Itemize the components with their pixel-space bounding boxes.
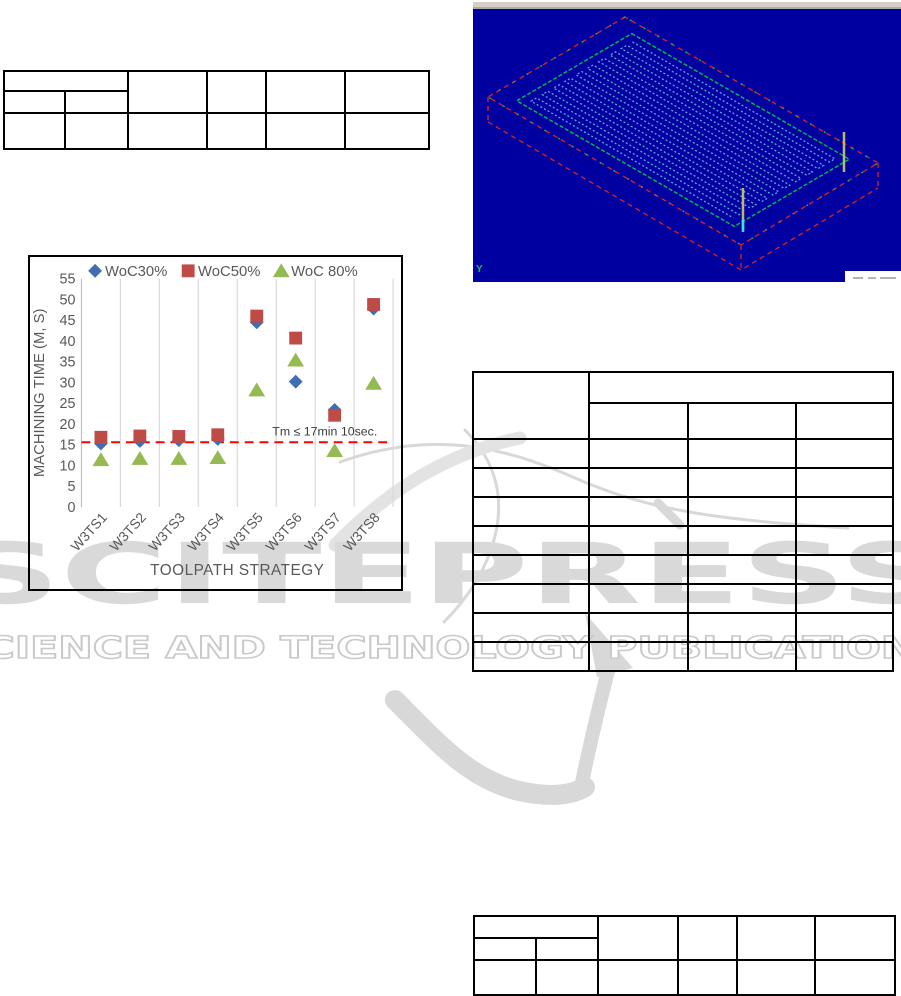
data-table-bottomright: [473, 915, 896, 996]
x-tick-label: W3TS3: [145, 509, 188, 554]
y-axis-title: MACHINING TIME (M, S): [32, 309, 48, 478]
data-table-topleft: [3, 70, 430, 150]
table-cell: [815, 916, 895, 960]
data-point-square: [182, 264, 195, 277]
data-point-triangle: [326, 443, 343, 457]
table-cell: [688, 468, 796, 497]
table-cell: [678, 916, 737, 960]
data-point-square: [289, 332, 302, 345]
table-cell: [473, 526, 589, 555]
table-cell: [688, 584, 796, 613]
table-cell: [796, 497, 893, 526]
table-cell: [598, 916, 678, 960]
table-cell: [688, 642, 796, 671]
table-cell: [796, 584, 893, 613]
data-point-diamond: [289, 375, 303, 389]
table-cell: [688, 526, 796, 555]
paper-page: SCITEPRESS SCIENCE AND TECHNOLOGY PUBLIC…: [0, 0, 901, 996]
data-point-square: [94, 431, 107, 444]
y-tick-label: 45: [60, 313, 76, 329]
table-cell: [207, 71, 266, 113]
y-tick-label: 25: [60, 396, 76, 412]
table-cell: [589, 555, 688, 584]
y-tick-label: 55: [60, 272, 76, 288]
table-cell: [796, 468, 893, 497]
table-cell: [589, 439, 688, 468]
table-cell: [796, 403, 893, 439]
table-cell: [589, 613, 688, 642]
table-cell: [474, 938, 536, 960]
y-tick-label: 20: [60, 417, 76, 433]
table-cell: [474, 960, 536, 995]
machining-time-chart: 0510152025303540455055MACHINING TIME (M,…: [28, 255, 403, 591]
data-point-square: [367, 298, 380, 311]
legend-label: WoC50%: [198, 264, 260, 280]
table-cell: [473, 584, 589, 613]
y-tick-label: 5: [68, 479, 76, 495]
chart-legend: WoC30%WoC50%WoC 80%: [88, 263, 358, 279]
table-cell: [589, 372, 893, 403]
data-point-triangle: [170, 451, 187, 465]
data-point-triangle: [273, 263, 290, 277]
table-cell: [266, 113, 345, 149]
x-tick-group: W3TS4: [184, 509, 227, 554]
y-tick-label: 15: [60, 438, 76, 454]
table-cell: [473, 439, 589, 468]
table-cell: [473, 642, 589, 671]
x-tick-label: W3TS2: [106, 509, 149, 554]
y-tick-label: 0: [68, 500, 76, 516]
table-cell: [589, 468, 688, 497]
table-cell: [589, 584, 688, 613]
y-tick-label: 10: [60, 458, 76, 474]
x-tick-group: W3TS8: [340, 509, 383, 554]
table-cell: [589, 526, 688, 555]
data-point-square: [172, 430, 185, 443]
x-axis-title: TOOLPATH STRATEGY: [150, 562, 324, 579]
y-tick-label: 40: [60, 334, 76, 350]
table-cell: [796, 555, 893, 584]
table-cell: [796, 642, 893, 671]
x-tick-label: W3TS6: [262, 509, 305, 554]
cad-axis-label: Y: [476, 264, 483, 275]
table-cell: [589, 403, 688, 439]
chart-canvas: 0510152025303540455055MACHINING TIME (M,…: [30, 257, 401, 589]
table-cell: [688, 439, 796, 468]
table-cell: [796, 613, 893, 642]
data-point-square: [211, 428, 224, 441]
table-cell: [815, 960, 895, 995]
x-tick-group: W3TS6: [262, 509, 305, 554]
table-cell: [473, 555, 589, 584]
table-cell: [688, 555, 796, 584]
table-cell: [473, 613, 589, 642]
data-point-square: [250, 310, 263, 323]
table-cell: [4, 71, 128, 91]
table-cell: [688, 403, 796, 439]
table-cell: [678, 960, 737, 995]
x-tick-label: W3TS5: [223, 509, 266, 554]
table-cell: [598, 960, 678, 995]
table-cell: [688, 497, 796, 526]
cad-background: [473, 9, 901, 282]
table-cell: [589, 642, 688, 671]
table-cell: [473, 468, 589, 497]
table-cell: [345, 113, 429, 149]
data-point-square: [328, 409, 341, 422]
x-tick-group: W3TS3: [145, 509, 188, 554]
x-tick-group: W3TS7: [301, 509, 344, 554]
table-cell: [473, 497, 589, 526]
y-tick-label: 50: [60, 292, 76, 308]
legend-label: WoC30%: [105, 264, 167, 280]
table-cell: [796, 439, 893, 468]
x-tick-label: W3TS8: [340, 509, 383, 554]
table-cell: [737, 960, 815, 995]
table-cell: [737, 916, 815, 960]
table-cell: [589, 497, 688, 526]
data-point-diamond: [88, 264, 102, 278]
x-tick-label: W3TS7: [301, 509, 344, 554]
data-point-triangle: [93, 452, 110, 466]
table-cell: [4, 113, 65, 149]
y-tick-label: 30: [60, 375, 76, 391]
table-cell: [474, 916, 598, 938]
table-cell: [207, 113, 266, 149]
table-cell: [266, 71, 345, 113]
y-tick-label: 35: [60, 355, 76, 371]
reference-line-label: Tm ≤ 17min 10sec.: [272, 424, 377, 438]
data-point-triangle: [209, 450, 226, 464]
x-tick-group: W3TS2: [106, 509, 149, 554]
data-point-triangle: [131, 451, 148, 465]
table-cell: [688, 613, 796, 642]
table-cell: [536, 938, 598, 960]
table-cell: [796, 526, 893, 555]
table-cell: [4, 91, 65, 113]
x-tick-label: W3TS4: [184, 509, 227, 554]
table-cell: [65, 91, 128, 113]
table-cell: [65, 113, 128, 149]
data-point-triangle: [365, 376, 382, 390]
data-point-triangle: [248, 383, 265, 397]
data-point-square: [133, 430, 146, 443]
cad-titlebar-strip: [473, 2, 901, 7]
table-cell: [536, 960, 598, 995]
legend-label: WoC 80%: [291, 264, 358, 280]
table-cell: [473, 372, 589, 439]
table-cell: [345, 71, 429, 113]
table-cell: [128, 71, 207, 113]
data-point-triangle: [287, 353, 304, 367]
table-cell: [128, 113, 207, 149]
data-table-right: [472, 371, 894, 672]
x-tick-group: W3TS5: [223, 509, 266, 554]
cad-toolpath-viewport: Y: [473, 2, 901, 284]
